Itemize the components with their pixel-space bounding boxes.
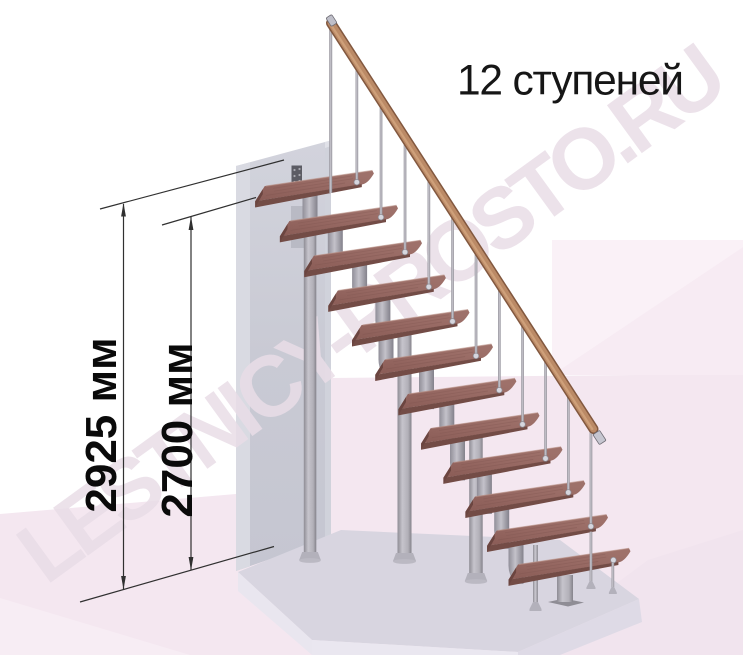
- svg-text:12 ступеней: 12 ступеней: [457, 58, 683, 105]
- svg-text:2700 мм: 2700 мм: [153, 342, 202, 517]
- svg-text:2925 мм: 2925 мм: [77, 337, 126, 512]
